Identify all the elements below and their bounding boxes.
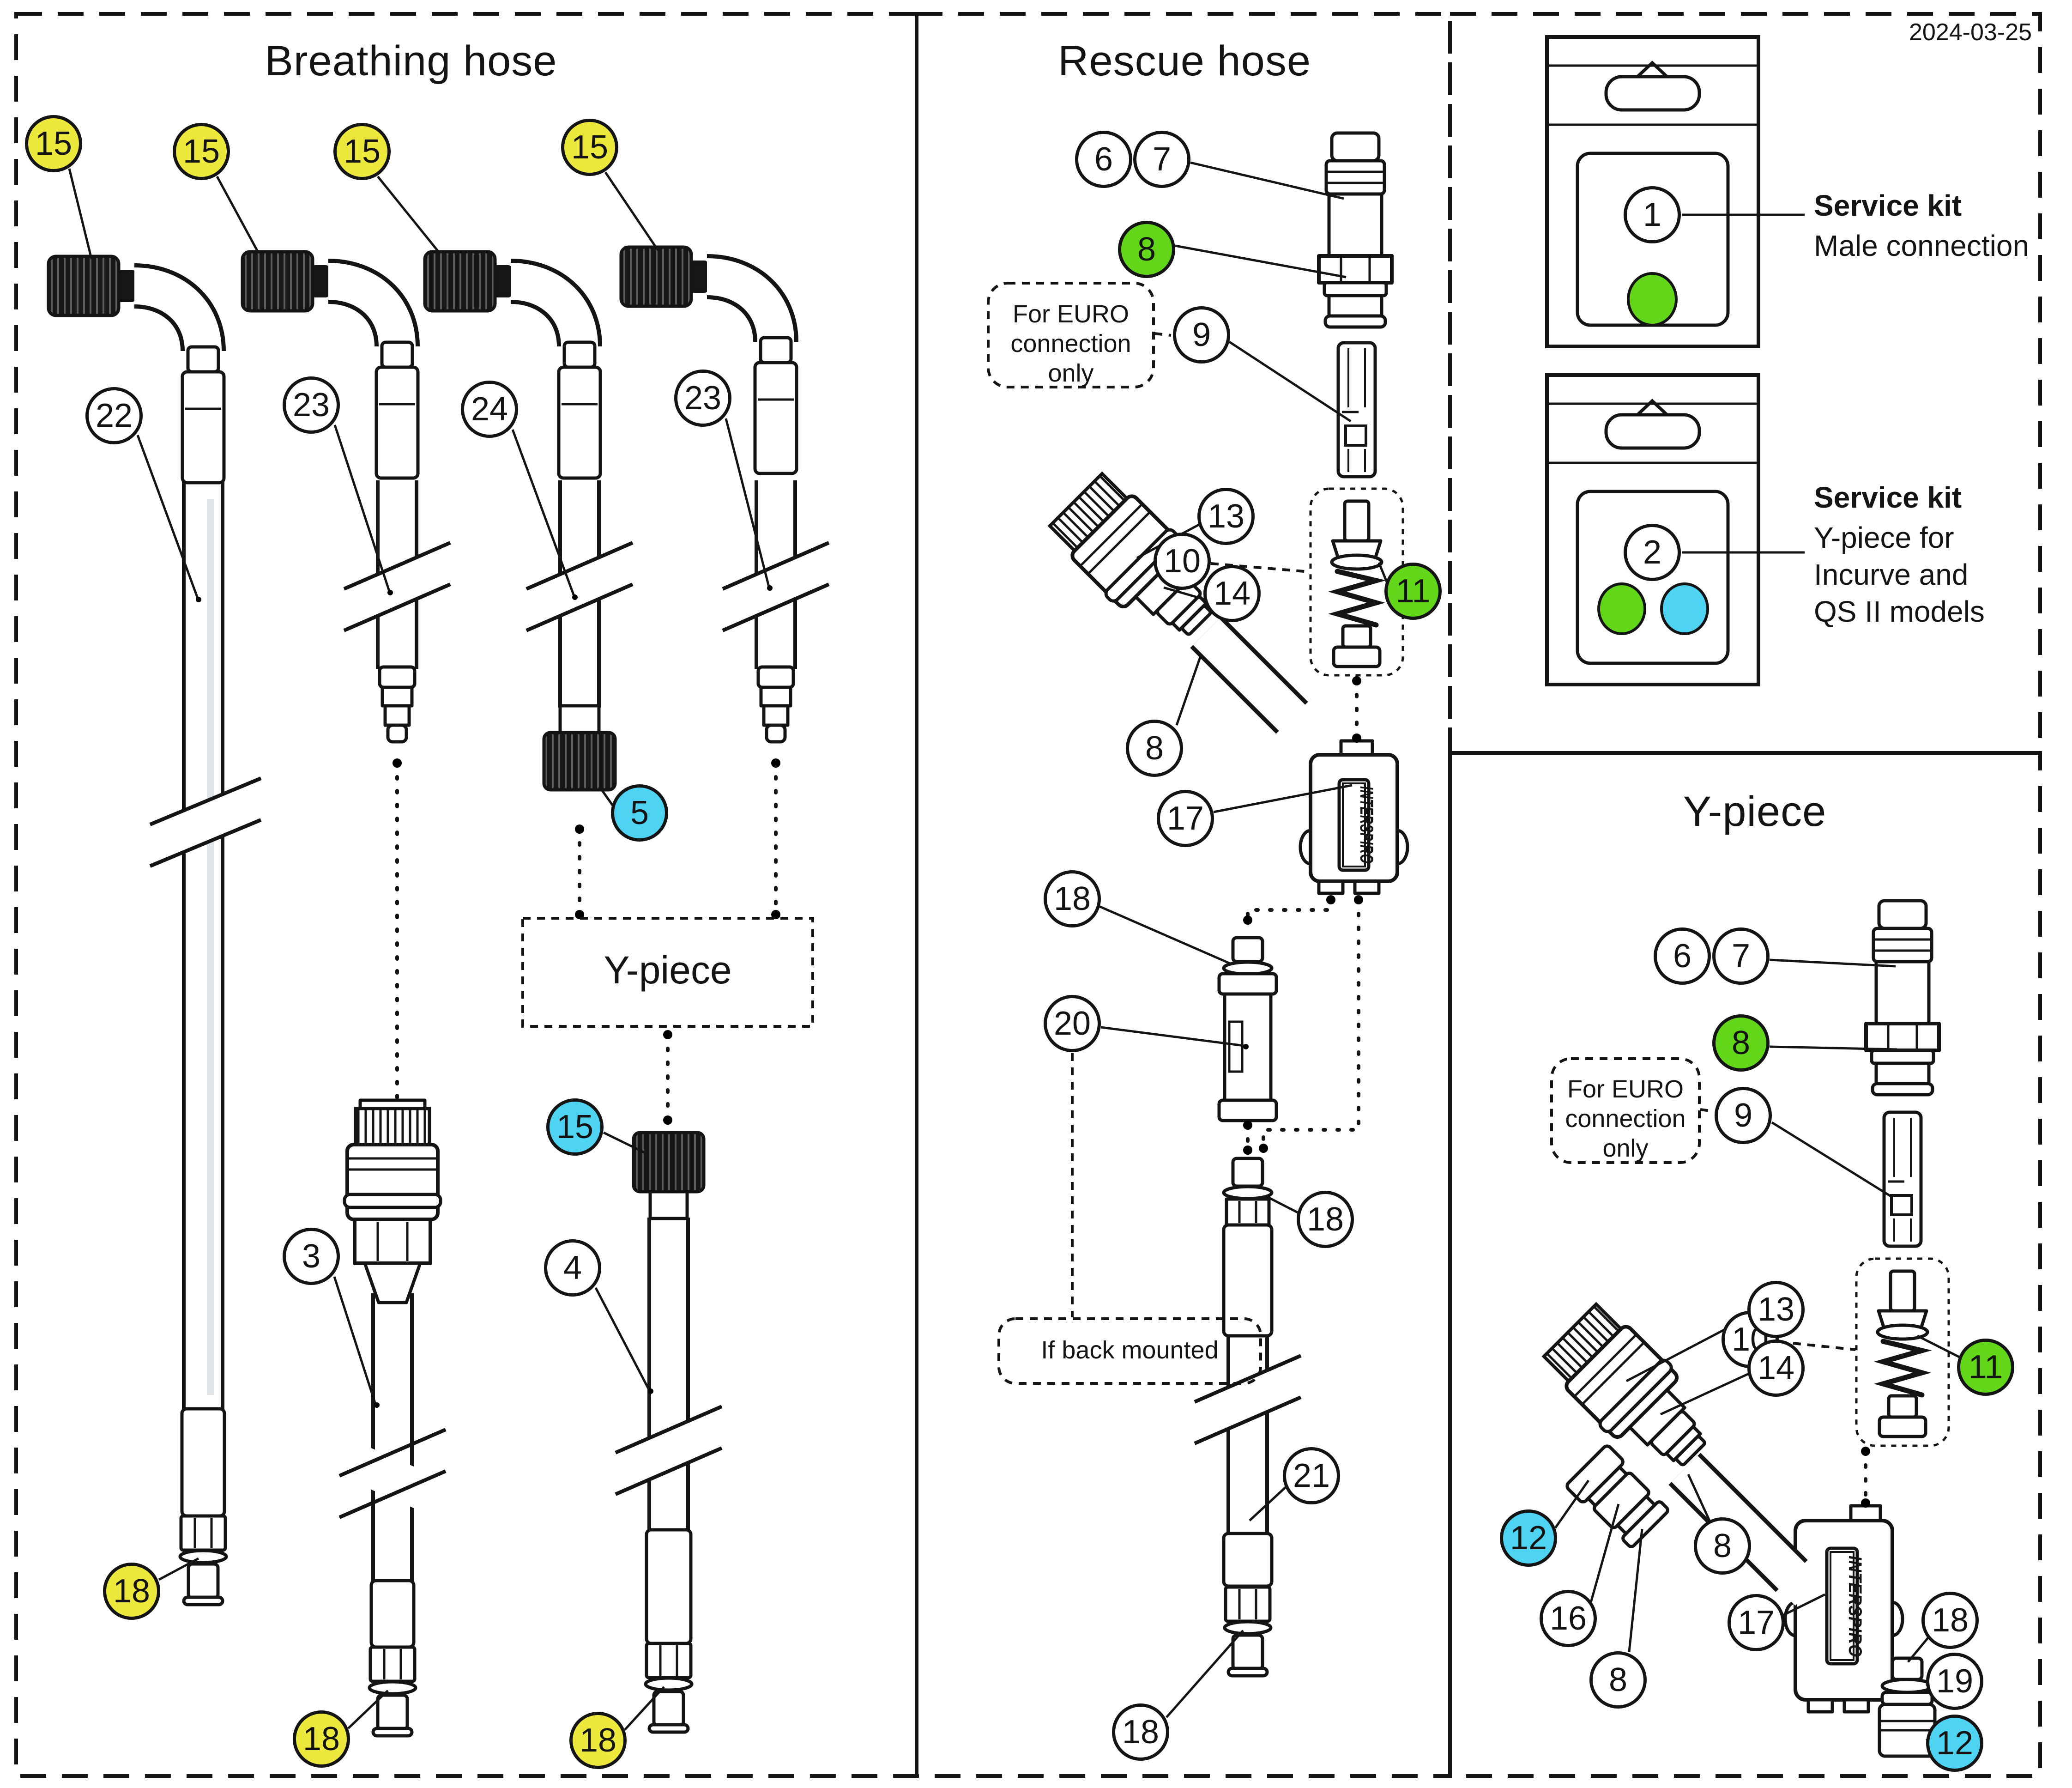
callout-10: 10 [1154,533,1211,590]
part4-hose [616,1133,722,1732]
euro-note-rescue: For EURO connection only [988,299,1154,388]
part3-coupling [339,1100,446,1736]
callout-18: 18 [1112,1703,1169,1761]
callout-8: 8 [1126,720,1183,777]
hose2-top [242,252,418,478]
callout-8: 8 [1712,1014,1770,1072]
kit2-desc: Y-piece for Incurve and QS II models [1814,519,1985,630]
callout-8: 8 [1589,1651,1647,1709]
hose1-fitting [180,1516,226,1605]
callout-17: 17 [1157,790,1214,847]
male-connector [1866,901,1939,1095]
ypiece-box-label: Y-piece [523,948,813,993]
callout-11: 11 [1957,1339,2014,1396]
cyan-dot [1661,584,1708,634]
callout-23: 23 [674,370,731,427]
euro-adapter [1338,343,1375,477]
valve-insert [1332,501,1382,667]
euro-note-ypiece: For EURO connection only [1552,1074,1699,1163]
callout-7: 7 [1133,131,1190,188]
callout-16: 16 [1540,1590,1597,1647]
callout-11: 11 [1384,563,1442,620]
callout-22: 22 [85,387,143,444]
kit1-desc: Male connection [1814,227,2029,264]
callout-19: 19 [1926,1653,1983,1710]
ybody: INTERSPIRO [1685,1469,1903,1712]
rescue-hose [1195,1158,1301,1676]
kit1-title: Service kit [1814,188,1962,223]
dotted-links-left [393,758,780,1125]
date-label: 2024-03-25 [1866,18,2032,46]
hose2-tip [380,667,415,742]
backmount-adapter [1219,938,1276,1121]
euro-adapter [1884,1112,1921,1246]
callout-13: 13 [1747,1281,1805,1338]
callout-2: 2 [1624,524,1681,581]
callout-7: 7 [1712,927,1770,985]
hose3-top [425,252,600,478]
hose4-top [621,247,797,473]
ybody: INTERSPIRO [1206,632,1408,893]
kit2-title: Service kit [1814,480,1962,515]
diagram-lineart: INTERSPIRO [0,0,2072,1788]
callout-6: 6 [1654,927,1711,985]
callout-3: 3 [283,1228,340,1285]
callout-15: 15 [561,119,618,176]
callout-12: 12 [1926,1715,1983,1772]
svg-text:INTERSPIRO: INTERSPIRO [1845,1556,1865,1657]
callout-8: 8 [1118,221,1175,278]
hose4-tip [758,667,793,742]
callout-18: 18 [1044,870,1101,927]
callout-20: 20 [1044,995,1101,1052]
callout-15: 15 [25,115,82,172]
callout-18: 18 [1921,1592,1979,1649]
male-connector [1319,133,1392,327]
valve-insert [1878,1271,1927,1436]
callout-17: 17 [1728,1594,1785,1651]
callout-12: 12 [1500,1509,1557,1567]
callout-14: 14 [1747,1339,1805,1397]
callout-18: 18 [103,1563,160,1620]
callout-18: 18 [1297,1191,1354,1248]
callout-15: 15 [333,123,391,180]
callout-8: 8 [1694,1517,1751,1575]
green-dot [1599,584,1645,634]
callout-1: 1 [1624,186,1681,243]
callout-21: 21 [1283,1447,1340,1504]
ypiece-title: Y-piece [1524,788,1986,836]
breathing-hose-title: Breathing hose [180,37,642,85]
callout-4: 4 [544,1239,601,1297]
callout-18: 18 [569,1712,627,1769]
callout-23: 23 [283,376,340,434]
callout-15: 15 [173,123,230,180]
callout-9: 9 [1715,1087,1772,1144]
break-marks [150,543,829,866]
back-mounted-note: If back mounted [999,1336,1261,1364]
callout-6: 6 [1075,131,1132,188]
callout-14: 14 [1203,565,1261,622]
service-kits-group [1547,37,1805,685]
callout-18: 18 [293,1710,350,1768]
svg-text:INTERSPIRO: INTERSPIRO [1356,786,1377,864]
callout-9: 9 [1173,306,1230,364]
callout-15: 15 [546,1098,604,1156]
rescue-hose-title: Rescue hose [954,37,1415,85]
hose1-top [48,256,224,483]
callout-13: 13 [1197,488,1255,545]
green-dot [1628,273,1676,325]
hose3-bottom-nut [544,733,615,790]
callout-5: 5 [611,784,668,842]
small-adapter [1565,1444,1671,1550]
diagram-root: INTERSPIRO [0,0,2072,1788]
callout-24: 24 [461,381,518,438]
